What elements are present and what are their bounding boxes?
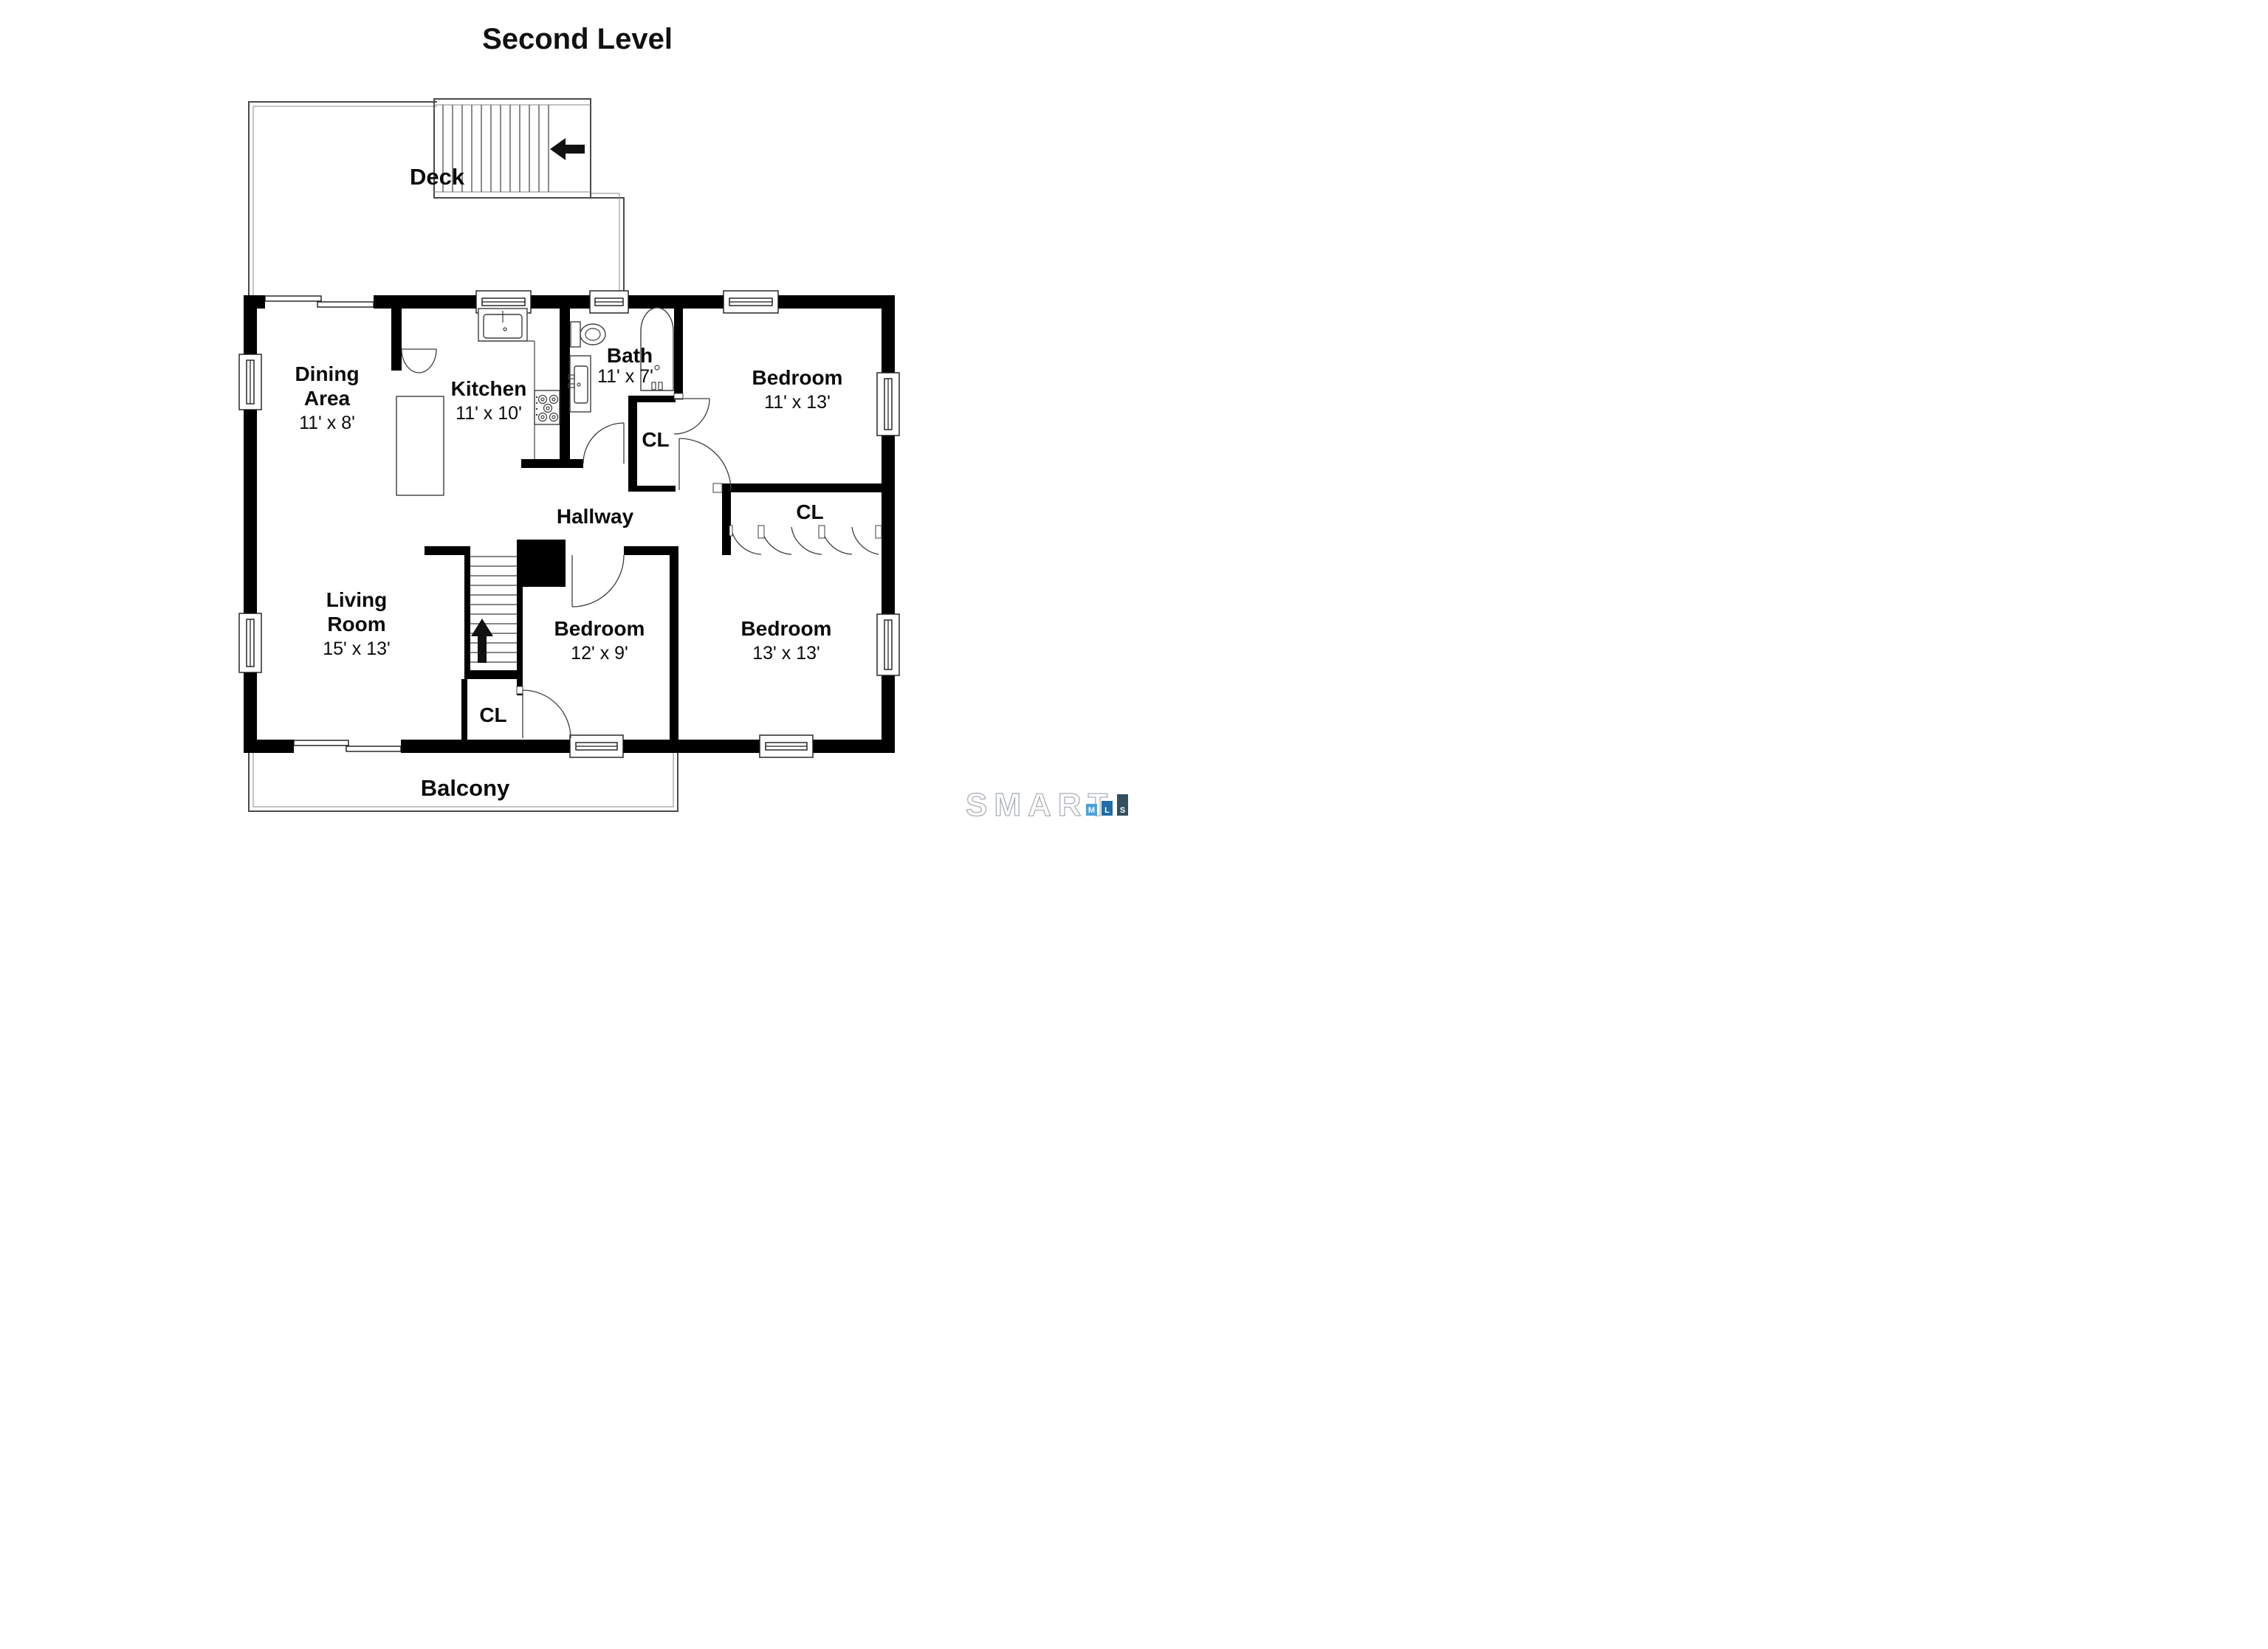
bath-door: [583, 423, 624, 464]
sliding-door-balcony: [294, 738, 401, 754]
cooktop: [535, 390, 560, 424]
room-label-closet-lower: CL: [479, 703, 506, 726]
room-dims-bath: 11' x 7': [597, 366, 653, 387]
room-dims-bedroom-mid: 12' x 9': [571, 643, 628, 664]
kitchen-counter: [478, 341, 535, 459]
room-dims-kitchen: 11' x 10': [456, 403, 522, 424]
window-dining-left: [239, 354, 261, 410]
window-bedroom-top: [724, 291, 778, 313]
room-label-closet-middle: CL: [642, 428, 669, 451]
interior-stairs: [470, 557, 517, 663]
logo-letter-m: M: [1088, 806, 1095, 815]
page-title: Second Level: [482, 23, 673, 55]
window-bedroom-right-upper: [877, 373, 899, 436]
window-bedroom-right-lower: [877, 614, 899, 675]
cafe-door: [402, 349, 436, 373]
kitchen-sink: [478, 309, 527, 341]
bath-vanity-sink: [568, 356, 591, 412]
stair-treads: [470, 557, 517, 662]
room-label-bedroom-tr: Bedroom: [752, 366, 843, 389]
room-label-bedroom-br: Bedroom: [741, 617, 832, 640]
room-dims-dining: 11' x 8': [299, 413, 355, 433]
window-bath: [590, 291, 628, 313]
window-bedroom-mid-bottom: [570, 735, 623, 757]
toilet: [571, 322, 605, 347]
room-dims-bedroom-br: 13' x 13': [752, 643, 820, 664]
closet-right-accordion-doors: [729, 526, 882, 554]
left-arrow-icon: [550, 138, 585, 160]
room-label-dining-1: Dining: [295, 362, 359, 385]
window-bedroom-br-bottom: [760, 735, 813, 757]
room-label-living-1: Living: [326, 588, 387, 611]
bedroom-middle-door: [572, 555, 624, 607]
room-dims-bedroom-tr: 11' x 13': [764, 392, 831, 413]
closet-middle-door: [674, 399, 709, 434]
bedroom-bottom-right-door: [679, 438, 731, 490]
sliding-door-deck: [265, 294, 374, 310]
kitchen-island: [396, 396, 444, 495]
room-dims-living: 15' x 13': [323, 638, 391, 659]
logo-letter-l: L: [1104, 806, 1110, 815]
room-label-bath: Bath: [607, 344, 653, 367]
room-label-hallway: Hallway: [557, 505, 634, 528]
up-arrow-icon: [471, 619, 493, 663]
logo-letter-s: S: [1120, 806, 1125, 815]
room-label-kitchen: Kitchen: [451, 377, 527, 400]
room-label-dining-2: Area: [304, 387, 351, 410]
floor-plan: Second Level Deck: [0, 0, 1134, 824]
room-label-balcony: Balcony: [421, 775, 510, 801]
closet-lower-door: [523, 690, 571, 738]
room-label-closet-right: CL: [796, 500, 823, 523]
room-label-deck: Deck: [410, 164, 465, 190]
smartmls-logo: SMART M L S: [966, 787, 1128, 823]
room-label-bedroom-mid: Bedroom: [554, 617, 645, 640]
room-label-living-2: Room: [327, 613, 385, 636]
window-living-left: [239, 613, 261, 672]
